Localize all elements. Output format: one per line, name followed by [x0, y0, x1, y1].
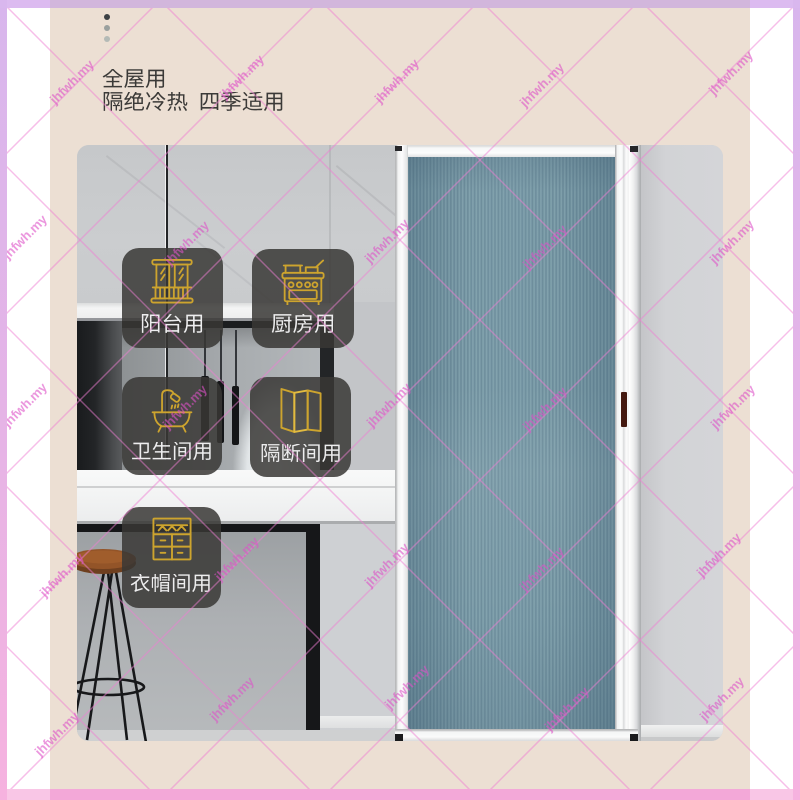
svg-text:jhfwh.my: jhfwh.my	[0, 211, 51, 263]
svg-text:jhfwh.my: jhfwh.my	[0, 379, 51, 431]
